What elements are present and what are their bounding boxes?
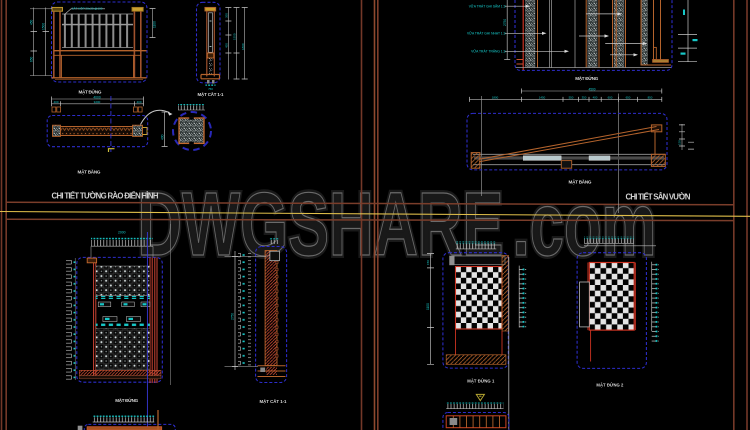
svg-text:2750: 2750 [503, 19, 507, 26]
svg-text:.com: .com [513, 175, 657, 275]
svg-text:MẶT ĐỨNG: MẶT ĐỨNG [115, 397, 138, 403]
svg-text:550: 550 [569, 96, 574, 100]
svg-text:400: 400 [593, 96, 598, 100]
svg-text:VỮA TRÁT GHI NHẠT 1:3: VỮA TRÁT GHI NHẠT 1:3 [467, 30, 506, 35]
svg-text:VỮA TRÁT TRẮNG 1:3: VỮA TRÁT TRẮNG 1:3 [471, 48, 505, 53]
svg-text:150: 150 [678, 140, 682, 145]
svg-text:350: 350 [225, 13, 229, 18]
svg-text:MẶT CẮT 1-1: MẶT CẮT 1-1 [198, 92, 225, 97]
svg-text:MẶT BẰNG: MẶT BẰNG [78, 168, 101, 175]
svg-text:650: 650 [30, 56, 34, 62]
svg-text:MẶT BẰNG: MẶT BẰNG [569, 177, 592, 184]
svg-text:1100: 1100 [153, 21, 157, 28]
svg-text:MẶT ĐỨNG 1: MẶT ĐỨNG 1 [467, 378, 495, 383]
svg-text:350: 350 [582, 96, 587, 100]
svg-text:4500: 4500 [588, 87, 595, 91]
svg-text:600: 600 [608, 96, 613, 100]
svg-text:850: 850 [648, 96, 653, 100]
svg-text:1550: 1550 [233, 33, 237, 40]
svg-text:400: 400 [53, 100, 58, 104]
svg-text:MẶT ĐỨNG 2: MẶT ĐỨNG 2 [596, 382, 624, 387]
svg-text:1500: 1500 [42, 23, 46, 30]
svg-text:450: 450 [30, 19, 34, 25]
svg-text:400: 400 [136, 100, 141, 104]
svg-text:750: 750 [208, 87, 213, 91]
svg-text:2000: 2000 [118, 231, 126, 235]
svg-text:3200: 3200 [94, 100, 101, 104]
svg-text:SẮT HỘP 20x20 @100: SẮT HỘP 20x20 @100 [72, 6, 103, 11]
svg-text:MẶT ĐỨNG: MẶT ĐỨNG [575, 75, 598, 81]
svg-text:1100: 1100 [426, 303, 430, 310]
svg-text:2750: 2750 [231, 313, 235, 320]
svg-text:650: 650 [626, 96, 631, 100]
svg-text:CHI TIẾT SÂN VƯỜN: CHI TIẾT SÂN VƯỜN [626, 192, 691, 202]
svg-text:150: 150 [426, 260, 430, 265]
svg-text:4000: 4000 [93, 95, 101, 99]
svg-text:DWGSHARE: DWGSHARE [138, 175, 504, 275]
svg-text:450: 450 [225, 43, 229, 48]
svg-text:VỮA TRÁT GHI SẪM 1:3: VỮA TRÁT GHI SẪM 1:3 [469, 3, 506, 8]
svg-text:1800: 1800 [492, 96, 499, 100]
svg-text:400: 400 [160, 134, 164, 140]
svg-text:CHI TIẾT TƯỜNG RÀO ĐIỂN HÌNH: CHI TIẾT TƯỜNG RÀO ĐIỂN HÌNH [52, 191, 159, 201]
svg-text:1800: 1800 [241, 43, 245, 50]
svg-text:1450: 1450 [539, 96, 546, 100]
svg-text:MẶT CẮT 1-1: MẶT CẮT 1-1 [260, 399, 288, 404]
svg-text:MẶT ĐỨNG: MẶT ĐỨNG [79, 89, 102, 95]
